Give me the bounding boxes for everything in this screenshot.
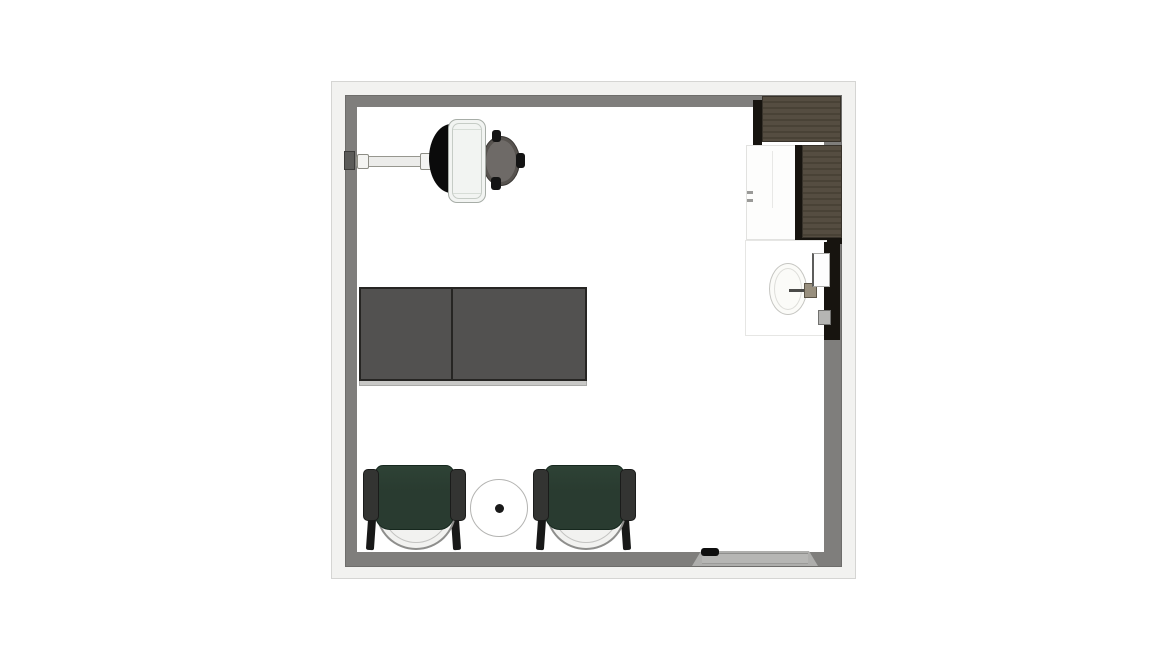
wall-mount-bracket — [344, 151, 355, 170]
floor-plan — [0, 0, 1166, 656]
round-side-table — [470, 479, 528, 537]
chair-seat — [375, 465, 454, 530]
side-table-center-post — [495, 504, 504, 513]
chair-seat — [545, 465, 624, 530]
equipment-arm-endcap — [357, 154, 369, 169]
base-cabinet-handle — [747, 191, 753, 194]
guest-chair-right — [533, 465, 634, 553]
wall-dispenser — [812, 253, 830, 287]
chair-leg — [536, 518, 546, 550]
upper-cabinet-right — [802, 145, 842, 238]
exam-chair-footline — [453, 193, 481, 194]
exam-chair-headline — [453, 129, 481, 130]
upper-cabinet-top — [762, 96, 841, 142]
base-cabinet — [746, 145, 796, 240]
upper-cabinet-right-side-panel — [795, 145, 802, 244]
work-table-group — [359, 287, 587, 381]
upper-cabinet-top-side-panel — [753, 100, 762, 145]
stool-caster-right — [516, 153, 525, 168]
chair-armrest — [363, 469, 379, 521]
chair-armrest — [620, 469, 636, 521]
chair-armrest — [533, 469, 549, 521]
operator-stool — [483, 137, 519, 185]
guest-chair-left — [363, 465, 464, 553]
work-table-divider — [451, 289, 453, 379]
base-cabinet-handle — [747, 199, 753, 202]
stool-caster-bottom — [491, 177, 501, 190]
wall-box — [818, 310, 831, 325]
base-cabinet-door-seam — [772, 151, 773, 208]
chair-armrest — [450, 469, 466, 521]
chair-leg — [366, 518, 376, 550]
stool-caster-top — [492, 130, 501, 142]
exam-chair-cushion-outline — [452, 123, 482, 199]
exam-chair — [448, 119, 486, 203]
door-handle — [701, 548, 719, 556]
work-table-front-edge — [359, 381, 587, 386]
